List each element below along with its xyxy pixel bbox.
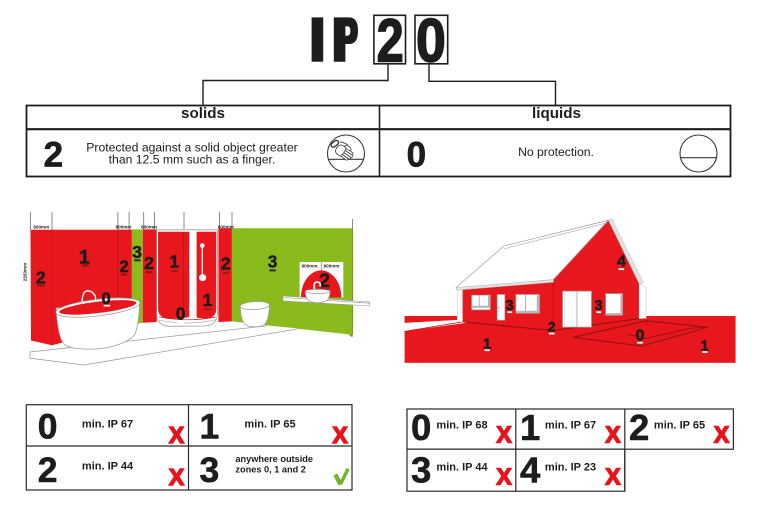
svg-text:min. IP 23: min. IP 23	[545, 462, 596, 474]
svg-text:600mm: 600mm	[141, 225, 157, 230]
svg-text:2250mm: 2250mm	[23, 263, 28, 281]
svg-text:3: 3	[411, 449, 431, 490]
svg-text:3: 3	[132, 242, 142, 262]
svg-text:1: 1	[203, 290, 213, 310]
svg-text:600mm: 600mm	[116, 225, 132, 230]
svg-text:liquids: liquids	[532, 105, 581, 122]
svg-text:X: X	[169, 464, 185, 490]
svg-text:X: X	[496, 422, 512, 448]
svg-text:min. IP 65: min. IP 65	[244, 419, 295, 431]
svg-text:600mm: 600mm	[218, 225, 234, 230]
svg-text:X: X	[605, 422, 621, 448]
svg-text:1: 1	[520, 407, 540, 448]
svg-text:X: X	[332, 422, 348, 448]
svg-text:1: 1	[200, 406, 220, 446]
svg-text:X: X	[169, 422, 185, 448]
svg-text:No protection.: No protection.	[518, 145, 594, 159]
svg-text:1: 1	[169, 252, 179, 272]
svg-text:than 12.5 mm such as a finger.: than 12.5 mm such as a finger.	[109, 153, 276, 167]
svg-text:min. IP 67: min. IP 67	[545, 420, 596, 432]
svg-text:3: 3	[200, 450, 220, 490]
svg-text:600mm: 600mm	[324, 263, 340, 268]
svg-text:2: 2	[144, 253, 154, 273]
svg-text:2: 2	[629, 407, 649, 448]
svg-text:min. IP 67: min. IP 67	[82, 419, 133, 431]
svg-text:anywhere outside: anywhere outside	[235, 454, 313, 464]
svg-text:min. IP 65: min. IP 65	[654, 420, 705, 432]
svg-text:X: X	[714, 422, 730, 448]
svg-text:600mm: 600mm	[33, 225, 49, 230]
svg-text:min. IP 68: min. IP 68	[436, 420, 487, 432]
svg-text:2: 2	[221, 254, 231, 274]
svg-text:600mm: 600mm	[302, 263, 318, 268]
svg-text:0: 0	[636, 327, 645, 344]
svg-text:min. IP 44: min. IP 44	[436, 462, 488, 474]
svg-text:4: 4	[520, 449, 541, 490]
svg-text:0: 0	[38, 406, 58, 446]
svg-text:2: 2	[548, 318, 556, 334]
svg-text:2: 2	[377, 6, 404, 74]
svg-text:0: 0	[176, 304, 186, 324]
svg-text:solids: solids	[181, 105, 225, 122]
svg-text:X: X	[496, 464, 512, 490]
svg-text:2: 2	[38, 450, 58, 490]
svg-text:2: 2	[120, 258, 129, 276]
svg-text:2: 2	[44, 136, 63, 175]
svg-text:zones 0, 1 and 2: zones 0, 1 and 2	[235, 464, 305, 474]
svg-text:X: X	[605, 464, 621, 490]
svg-text:3: 3	[268, 251, 278, 271]
svg-text:0: 0	[411, 407, 431, 448]
svg-text:4: 4	[617, 254, 626, 271]
svg-text:0: 0	[416, 8, 446, 76]
svg-text:0: 0	[407, 136, 426, 175]
svg-text:min. IP 44: min. IP 44	[82, 461, 134, 473]
